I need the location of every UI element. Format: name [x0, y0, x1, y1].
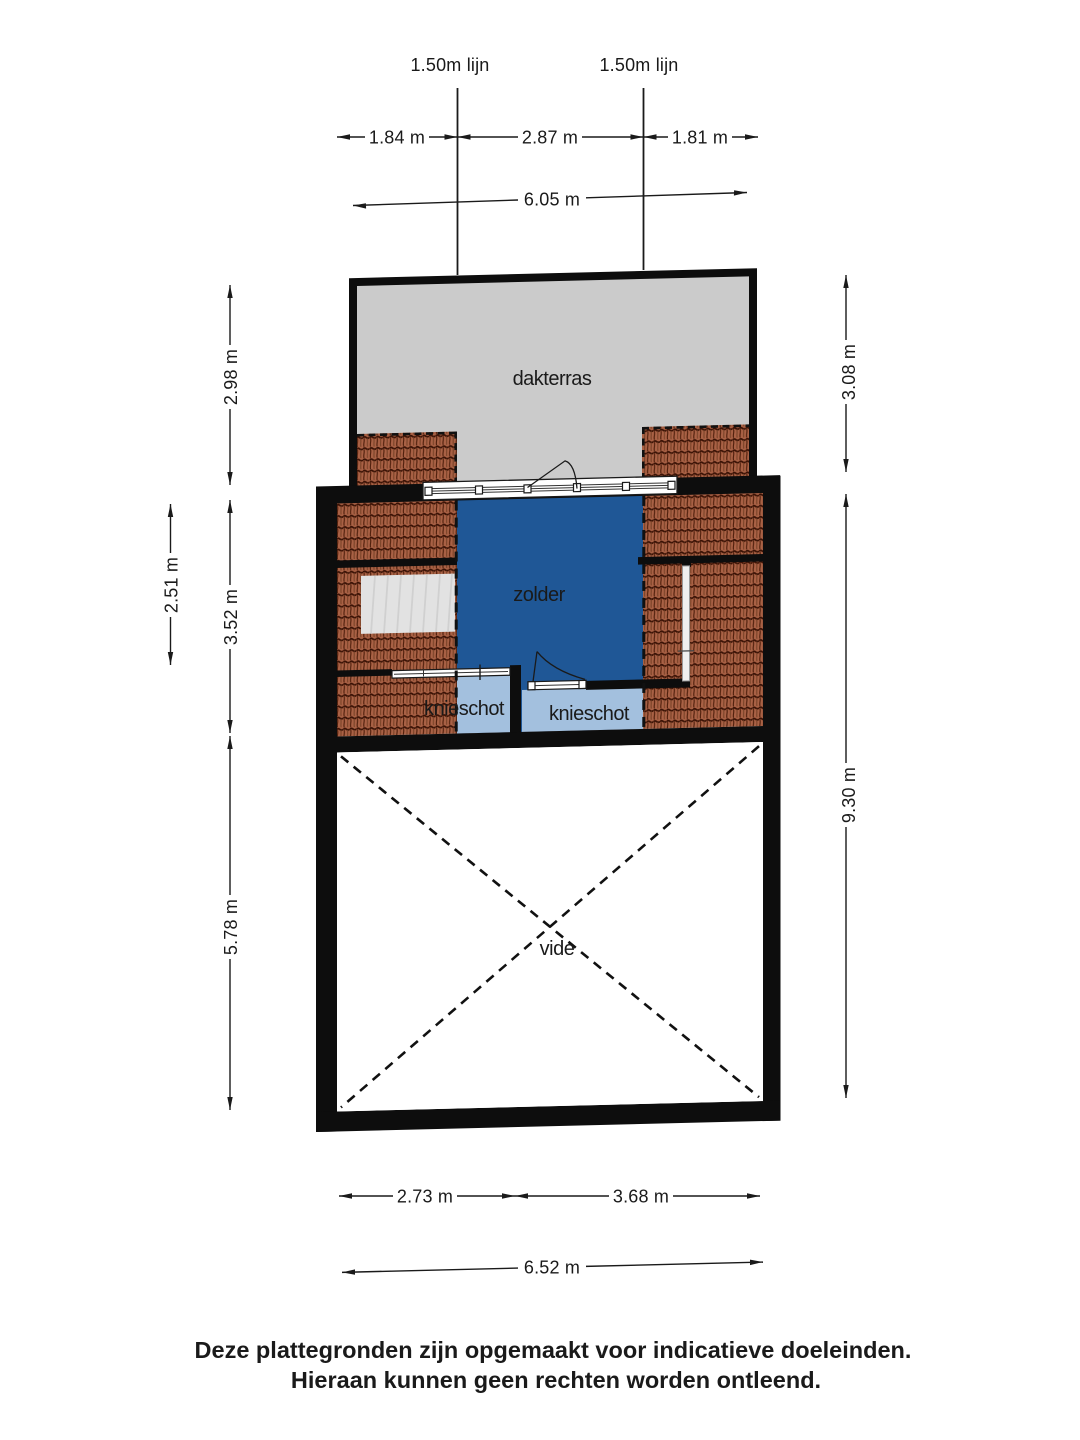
svg-text:1.84 m: 1.84 m	[369, 128, 425, 148]
svg-text:3.68 m: 3.68 m	[613, 1187, 669, 1207]
svg-text:knieschot: knieschot	[424, 698, 505, 720]
svg-text:1.81 m: 1.81 m	[672, 128, 728, 148]
svg-text:6.52 m: 6.52 m	[524, 1258, 580, 1278]
svg-text:zolder: zolder	[513, 584, 565, 606]
svg-text:3.52 m: 3.52 m	[221, 589, 241, 645]
svg-text:1.50m lijn: 1.50m lijn	[599, 55, 678, 75]
svg-text:Deze plattegronden zijn opgema: Deze plattegronden zijn opgemaakt voor i…	[195, 1337, 912, 1363]
svg-text:2.51 m: 2.51 m	[162, 557, 182, 613]
svg-text:2.73 m: 2.73 m	[397, 1187, 453, 1207]
svg-text:dakterras: dakterras	[513, 368, 592, 390]
svg-text:2.87 m: 2.87 m	[522, 128, 578, 148]
svg-text:2.98 m: 2.98 m	[221, 349, 241, 405]
svg-text:6.05 m: 6.05 m	[524, 190, 580, 210]
svg-text:Hieraan kunnen geen rechten wo: Hieraan kunnen geen rechten worden ontle…	[291, 1367, 821, 1393]
svg-text:vide: vide	[540, 938, 575, 960]
svg-text:9.30 m: 9.30 m	[839, 767, 859, 823]
svg-text:1.50m lijn: 1.50m lijn	[410, 55, 489, 75]
svg-text:3.08 m: 3.08 m	[839, 344, 859, 400]
svg-text:knieschot: knieschot	[549, 703, 630, 725]
svg-text:5.78 m: 5.78 m	[221, 899, 241, 955]
